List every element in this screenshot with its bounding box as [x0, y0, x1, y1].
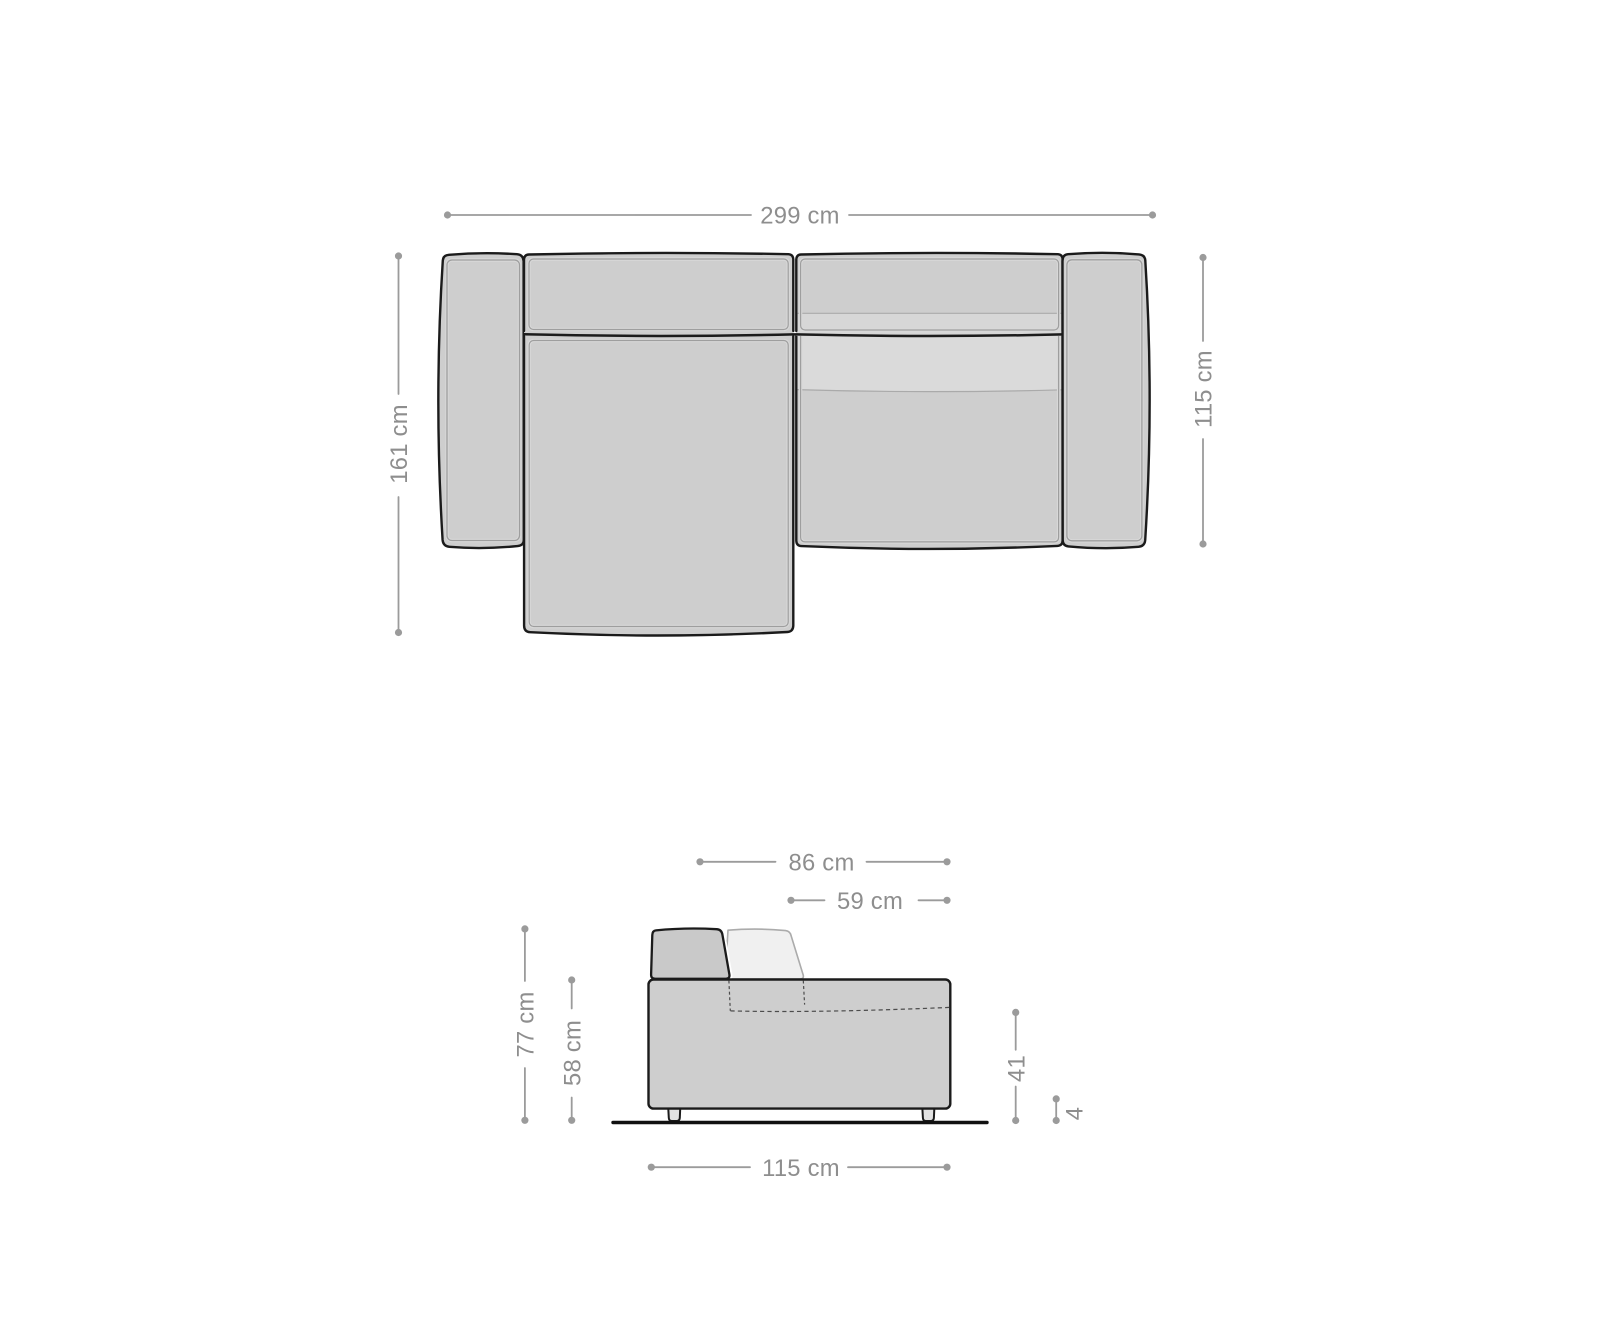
svg-text:299 cm: 299 cm: [760, 203, 840, 230]
svg-text:41: 41: [1003, 1055, 1030, 1082]
svg-text:59 cm: 59 cm: [837, 888, 903, 915]
svg-text:115 cm: 115 cm: [1191, 350, 1218, 428]
svg-text:161 cm: 161 cm: [386, 404, 413, 484]
svg-text:115 cm: 115 cm: [762, 1155, 840, 1182]
svg-text:58 cm: 58 cm: [559, 1020, 586, 1086]
svg-text:4: 4: [1062, 1107, 1089, 1121]
svg-text:86 cm: 86 cm: [788, 850, 854, 877]
svg-text:77 cm: 77 cm: [513, 991, 540, 1057]
